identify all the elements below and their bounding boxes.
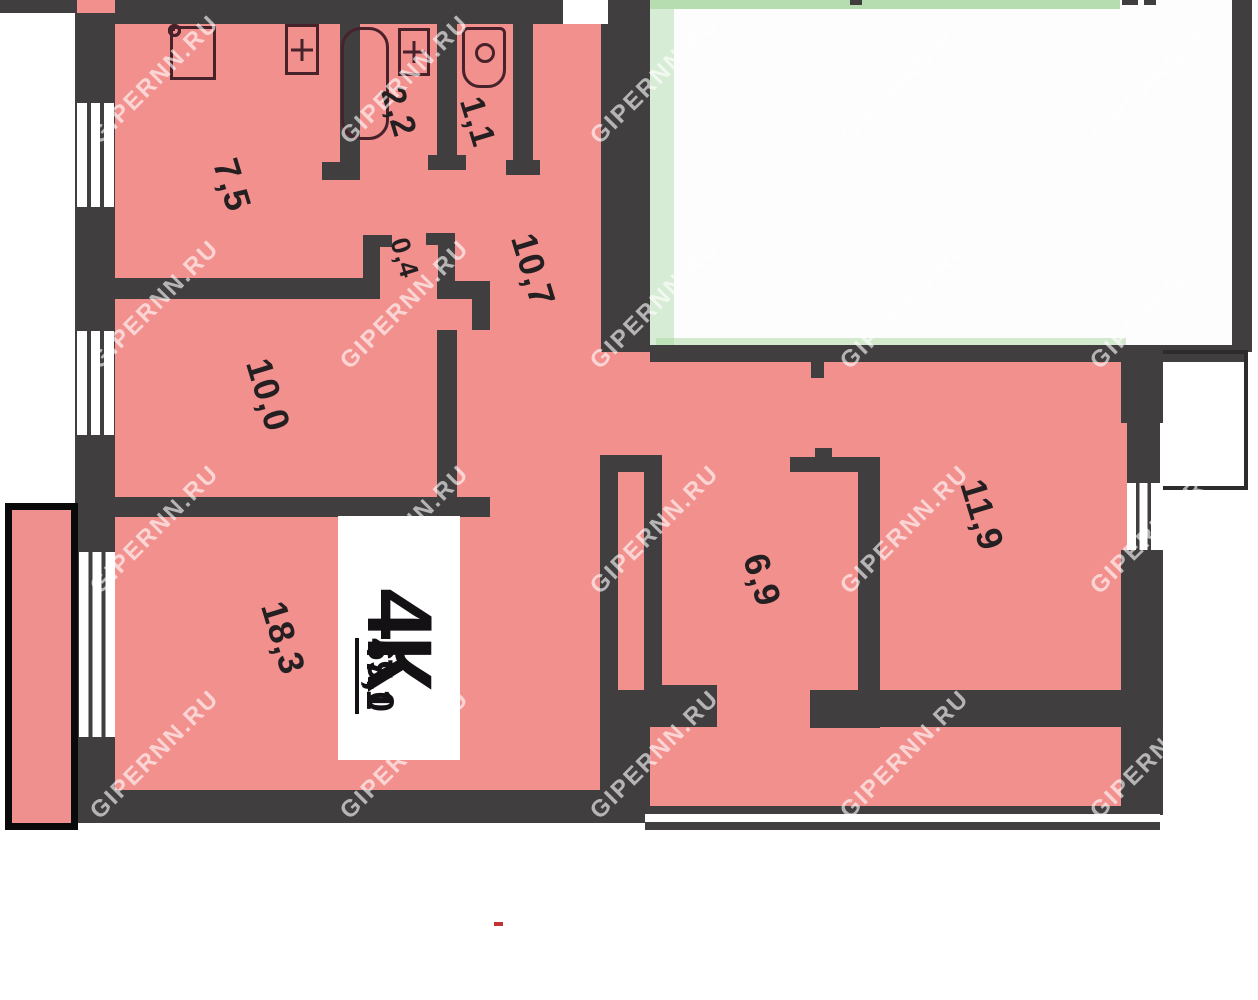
- watermark-layer: GIPERNN.RUGIPERNN.RUGIPERNN.RUGIPERNN.RU…: [0, 0, 1258, 1000]
- watermark: GIPERNN.RU: [585, 10, 725, 150]
- watermark: GIPERNN.RU: [835, 685, 975, 825]
- watermark: GIPERNN.RU: [585, 460, 725, 600]
- watermark: GIPERNN.RU: [1085, 10, 1225, 150]
- watermark: GIPERNN.RU: [1085, 235, 1225, 375]
- watermark: GIPERNN.RU: [835, 10, 975, 150]
- watermark: GIPERNN.RU: [335, 460, 475, 600]
- watermark: GIPERNN.RU: [835, 460, 975, 600]
- watermark: GIPERNN.RU: [835, 235, 975, 375]
- floor-plan: 7,5 2,2 1,1 10,7 0,4 10,0 18,3 6,9 11,9 …: [0, 0, 1258, 1000]
- watermark: GIPERNN.RU: [335, 235, 475, 375]
- watermark: GIPERNN.RU: [335, 685, 475, 825]
- watermark: GIPERNN.RU: [585, 685, 725, 825]
- watermark: GIPERNN.RU: [85, 460, 225, 600]
- watermark: GIPERNN.RU: [585, 235, 725, 375]
- watermark: GIPERNN.RU: [85, 235, 225, 375]
- watermark: GIPERNN.RU: [335, 10, 475, 150]
- watermark: GIPERNN.RU: [85, 10, 225, 150]
- watermark: GIPERNN.RU: [1085, 460, 1225, 600]
- watermark: GIPERNN.RU: [85, 685, 225, 825]
- watermark: GIPERNN.RU: [1085, 685, 1225, 825]
